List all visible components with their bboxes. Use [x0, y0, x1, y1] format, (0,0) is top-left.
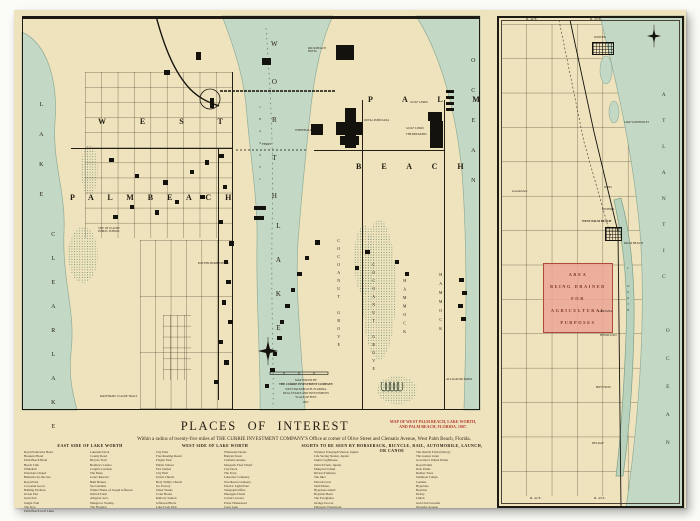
list-item: Oleander Avenue	[416, 505, 484, 509]
list-item: The Hospital	[90, 505, 154, 509]
matthams-label: MATTHAMS' 10 ACRE TRACT	[100, 396, 138, 399]
building-marker	[223, 185, 227, 189]
building-marker	[219, 340, 223, 344]
lantana-label: LANTANA	[598, 310, 612, 313]
hammock-label: HAMMOCK	[438, 272, 442, 335]
cocoanut-grove-label: COCOANUT GROVE	[336, 238, 340, 350]
building-marker	[254, 216, 264, 220]
places-column: Lakeside DockCounty RoadBicycle TrailBra…	[90, 450, 154, 509]
building-marker	[229, 241, 234, 246]
boynton-label: BOYNTON	[596, 386, 611, 389]
list-item: Palm Beach Golf Links	[24, 509, 86, 513]
building-marker	[430, 121, 443, 148]
breakers-label: THE BREAKERS	[406, 134, 428, 137]
jupiter-label: JUPITER	[594, 36, 606, 39]
building-marker	[305, 256, 309, 260]
building-marker	[340, 136, 359, 145]
hypoluxo-label: HYPOLUXO	[600, 334, 617, 337]
range-top-right-label: R. 43 E.	[590, 18, 601, 22]
range-bottom-right-label: R. 43 E.	[594, 497, 605, 501]
lake-worth-inlet-label: LAKE WORTH INLET	[624, 122, 649, 125]
potter-homestead-label: POTTER HOMESTEAD	[198, 262, 229, 265]
building-marker	[291, 288, 295, 292]
building-marker	[365, 250, 370, 254]
list-header-west: WEST SIDE OF LAKE WORTH	[160, 443, 270, 448]
whitehall-label: WHITEHALL	[295, 130, 311, 133]
palm-beach-west-label: P A L M B E A C H	[70, 194, 237, 202]
building-marker	[226, 280, 231, 284]
lake-worth-label: W O R T H	[270, 40, 277, 211]
golf-links-label: GOLF LINKS	[406, 126, 424, 130]
lake-label-upper: L A K E	[38, 102, 44, 207]
building-marker	[311, 124, 323, 135]
delray-label: DELRAY	[592, 442, 604, 445]
riviera-label: RIVIERA	[602, 208, 614, 211]
building-marker	[395, 260, 399, 264]
channel-label: C H A N N E L	[258, 105, 261, 183]
ocean-label-inset: O C E A N	[664, 328, 670, 454]
map-sheet: AREABEING DRAINEDFORAGRICULTURALPURPOSES…	[14, 10, 686, 508]
building-marker	[315, 240, 320, 245]
building-marker	[135, 174, 139, 178]
building-marker	[219, 220, 223, 224]
building-marker	[190, 170, 194, 174]
alligator-farm-label: ALLIGATOR FARM	[442, 378, 476, 381]
building-marker	[458, 304, 463, 308]
places-column: Wireless Telegraph Station, JupiterLife …	[314, 450, 408, 509]
building-marker	[109, 158, 114, 162]
building-marker	[228, 320, 233, 324]
palm-beach-hotel-label: PALM BEACH HOTEL	[308, 48, 334, 54]
royal-poinciana-label: ROYAL POINCIANA	[364, 120, 390, 123]
clear-lake-label: C L E A R L A K E	[50, 232, 56, 436]
building-marker	[285, 304, 290, 308]
building-marker	[270, 368, 275, 372]
building-marker	[336, 45, 354, 60]
building-marker	[459, 278, 464, 282]
building-marker	[461, 317, 466, 321]
building-marker	[155, 210, 159, 215]
building-marker	[205, 160, 209, 165]
golf-links-label: GOLF LINKS	[410, 100, 428, 104]
map-subtitle: Within a radius of twenty-five miles of …	[104, 437, 504, 442]
building-marker	[224, 360, 229, 365]
building-marker	[446, 108, 454, 111]
loxahatchee-label: Loxahatchee	[512, 190, 527, 193]
range-bottom-left-label: R. 42 E.	[530, 497, 541, 501]
red-edition-note: MAP OF WEST PALM BEACH, LAKE WORTH,AND P…	[380, 419, 486, 430]
atlantic-label: A T L A N T I C	[660, 92, 666, 287]
juno-label: JUNO	[604, 186, 612, 189]
list-item: Pineapple Plantations	[314, 505, 408, 509]
places-column: The Ostrich Farm (Delray)The Gomez Grant…	[416, 450, 484, 509]
building-marker	[222, 300, 226, 305]
places-column: Royal Poinciana HotelBreakers HotelPalm …	[24, 450, 86, 513]
inset-palm-beach-label: PALM BEACH	[624, 242, 643, 245]
building-marker	[446, 90, 454, 93]
building-marker	[254, 206, 266, 210]
building-marker	[196, 52, 201, 60]
list-header-east: EAST SIDE OF LAKE WORTH	[30, 443, 150, 448]
publisher-block: MAP ISSUED BYTHE CURRIE INVESTMENT COMPA…	[266, 378, 346, 404]
lake-label-lower: L A K E	[274, 222, 281, 341]
building-marker	[214, 380, 218, 384]
building-marker	[163, 180, 168, 185]
public-school-label: SITE OF 10 ACRE PUBLIC SCHOOL	[94, 228, 124, 234]
list-item: Clear Lake	[224, 505, 290, 509]
map-title: PLACES OF INTEREST	[165, 419, 365, 434]
list-item: 1907.	[266, 400, 346, 404]
building-marker	[219, 154, 224, 158]
lake-worth-inset-label: L. WORTH	[626, 266, 629, 314]
building-marker	[210, 98, 214, 108]
range-top-left-label: R. 42 E.	[526, 18, 537, 22]
list-item: Lake Front Park	[156, 505, 218, 509]
building-marker	[428, 112, 442, 121]
building-marker	[273, 352, 277, 356]
cocoanut-grove-label: COCOANUT GROVE	[371, 262, 375, 374]
inset-wpb-label: WEST PALM BEACH	[582, 220, 611, 223]
ferry-label: FERRY	[262, 143, 272, 146]
list-item: AND PALM BEACH, FLORIDA. 1907.	[380, 424, 486, 429]
building-marker	[130, 205, 134, 209]
hammock-label: HAMMOCK	[402, 278, 406, 338]
building-marker	[113, 215, 118, 219]
beach-label: B E A C H	[356, 163, 473, 171]
building-marker	[462, 291, 467, 295]
building-marker	[355, 266, 359, 270]
building-marker	[164, 70, 170, 75]
building-marker	[297, 272, 302, 276]
places-column: Wholesale DocksBanyan StreetClematis Ave…	[224, 450, 290, 509]
places-column: City ParkFree Reading RoomFlagler ParkPu…	[156, 450, 218, 509]
west-label: W E S T	[98, 118, 239, 126]
building-marker	[405, 272, 409, 276]
ocean-label-main: O C E A N	[470, 58, 476, 193]
